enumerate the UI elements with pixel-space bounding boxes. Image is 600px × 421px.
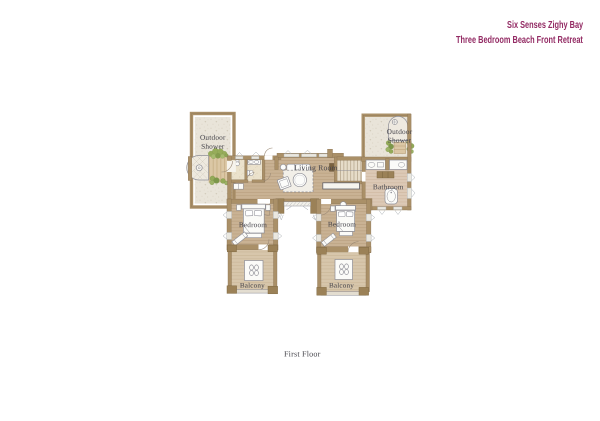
svg-text:Shower: Shower: [388, 136, 412, 145]
svg-text:Outdoor: Outdoor: [200, 133, 226, 142]
svg-text:Bedroom: Bedroom: [328, 221, 356, 229]
svg-text:Bathroom: Bathroom: [373, 182, 404, 191]
svg-text:Balcony: Balcony: [329, 282, 354, 290]
svg-text:Balcony: Balcony: [240, 282, 265, 290]
svg-text:First Floor: First Floor: [284, 349, 321, 358]
svg-text:Living Room: Living Room: [294, 163, 337, 172]
svg-text:Bedroom: Bedroom: [239, 221, 267, 229]
svg-text:Shower: Shower: [201, 142, 225, 151]
